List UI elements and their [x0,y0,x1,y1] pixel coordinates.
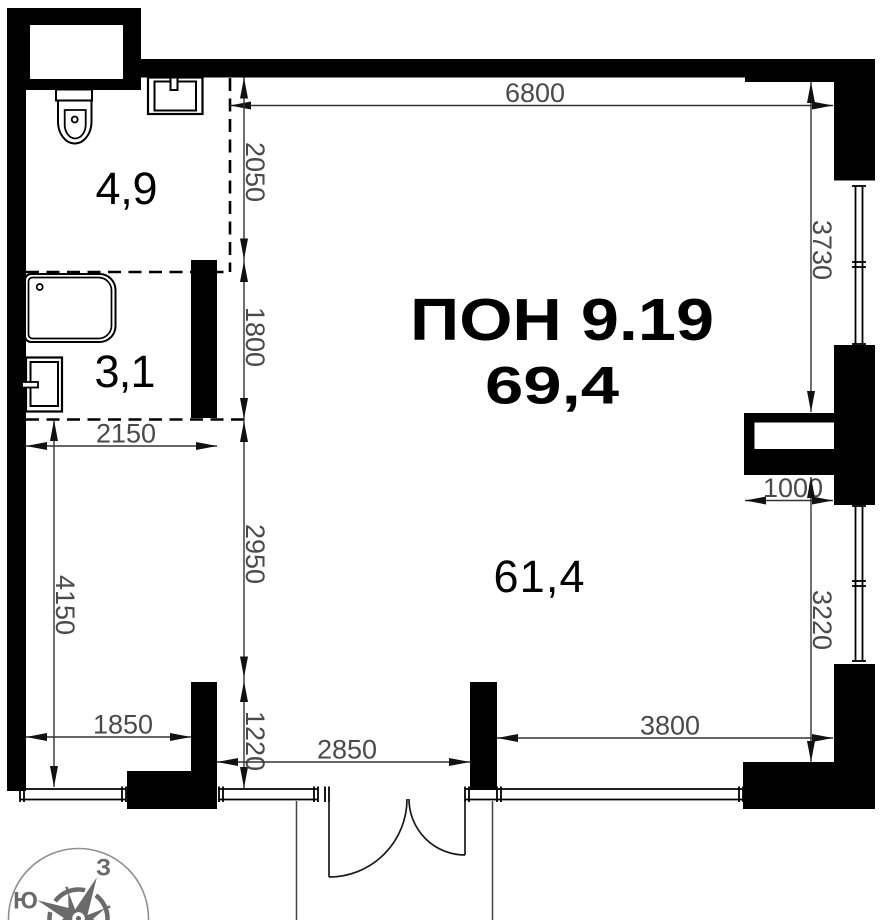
svg-text:6800: 6800 [505,78,565,108]
svg-text:2850: 2850 [317,735,377,765]
svg-text:2150: 2150 [96,419,156,449]
svg-text:1850: 1850 [93,710,153,740]
svg-text:1800: 1800 [240,307,270,367]
svg-text:69,4: 69,4 [485,356,619,415]
svg-text:ПОН 9.19: ПОН 9.19 [410,286,714,352]
svg-text:2050: 2050 [240,142,270,202]
svg-text:4150: 4150 [50,575,80,635]
svg-text:3730: 3730 [807,220,837,280]
svg-text:3,1: 3,1 [95,346,156,397]
svg-text:Ю: Ю [13,888,38,915]
svg-text:3800: 3800 [640,711,700,741]
svg-text:1000: 1000 [763,473,823,503]
svg-text:4,9: 4,9 [96,163,158,214]
svg-text:61,4: 61,4 [494,551,585,602]
svg-text:2950: 2950 [240,524,270,584]
svg-text:3220: 3220 [807,590,837,650]
svg-text:З: З [96,855,111,882]
